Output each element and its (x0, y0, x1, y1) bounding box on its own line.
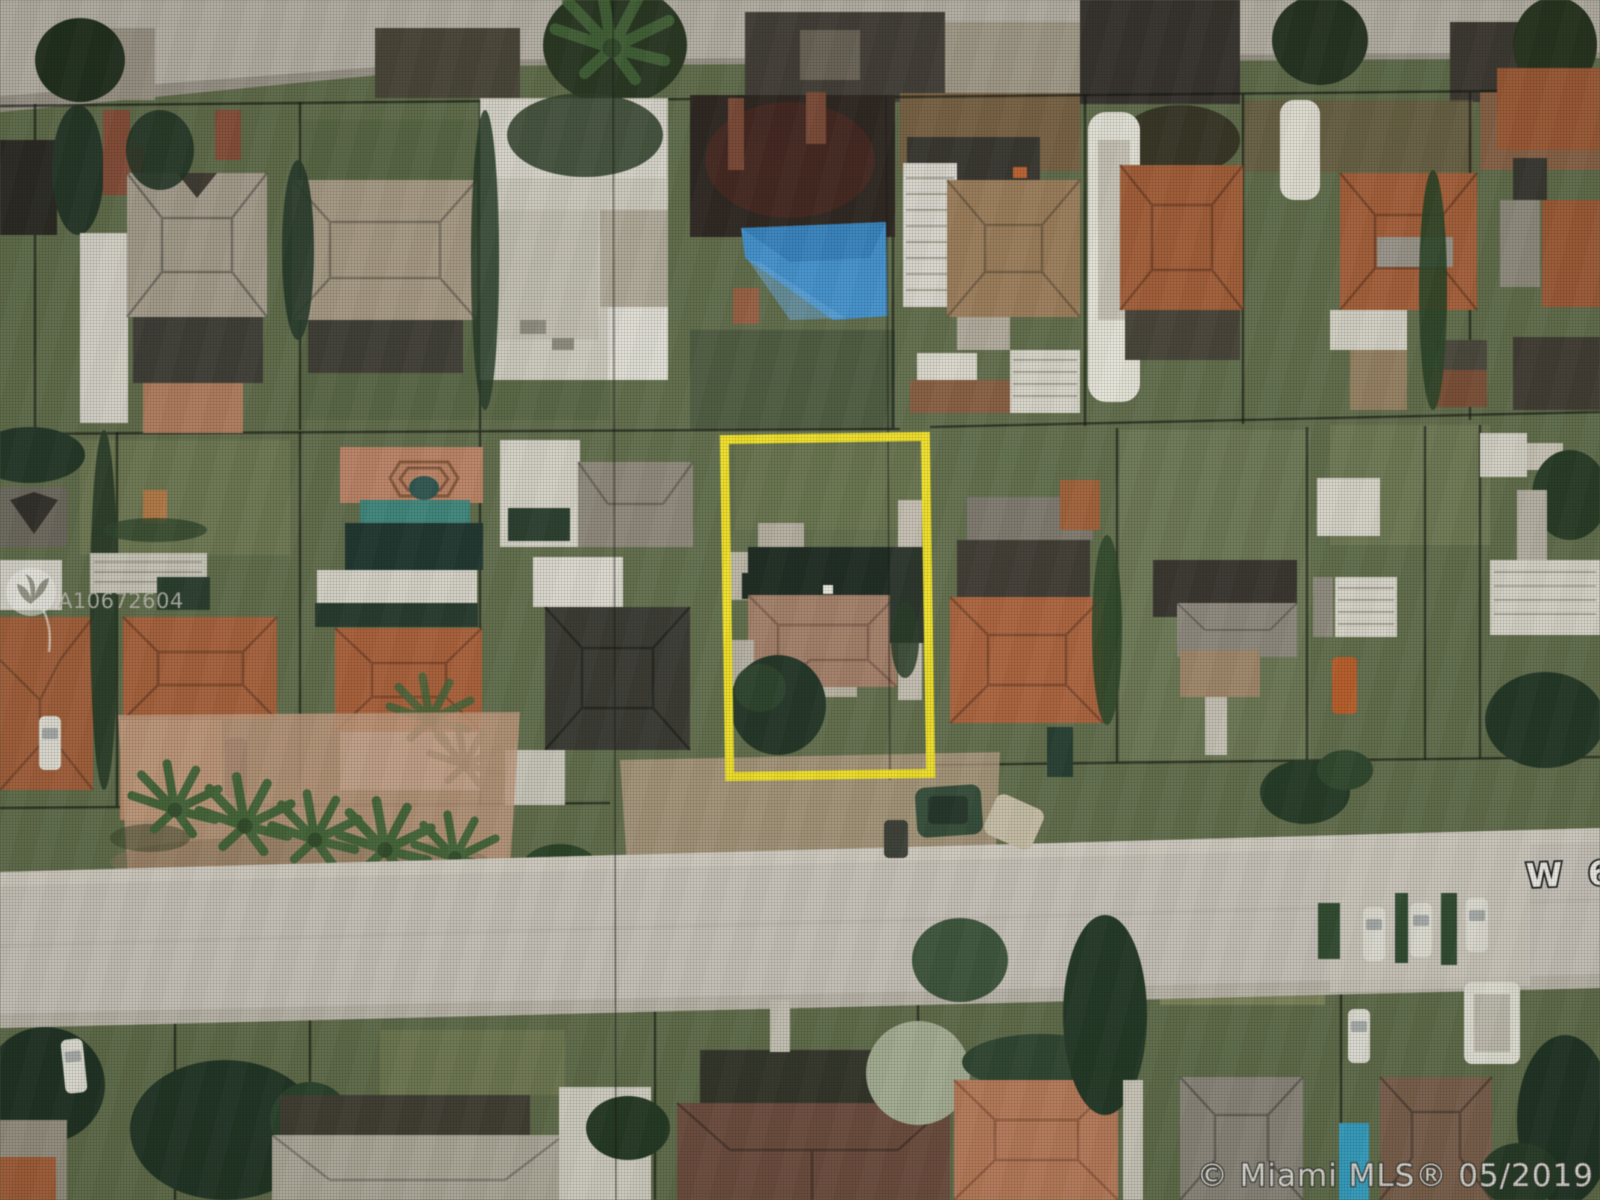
street-name-label: W 6 (1525, 853, 1600, 895)
listing-id-watermark: A10672604 (58, 589, 184, 613)
copyright-watermark: © Miami MLS® 05/2019 (1197, 1158, 1594, 1194)
backyard-pool (360, 500, 470, 525)
aerial-photo: A10672604 W 6 © Miami MLS® 05/2019 (0, 0, 1600, 1200)
